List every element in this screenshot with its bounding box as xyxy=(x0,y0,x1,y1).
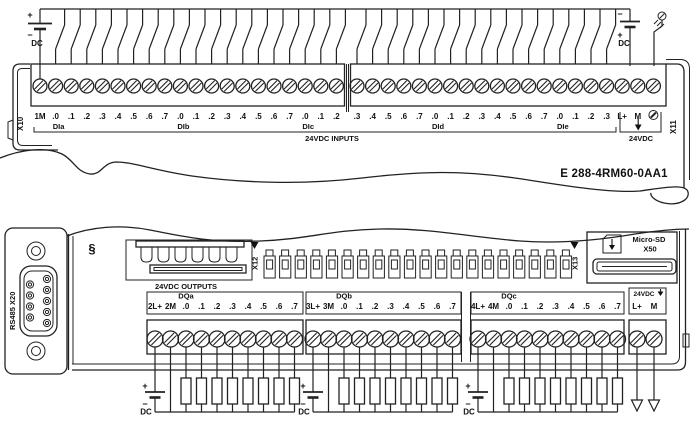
input-switch xyxy=(87,9,96,64)
relay-unit xyxy=(326,250,337,278)
pin-label: .7 xyxy=(286,112,293,121)
dc-source: +−DC xyxy=(463,347,488,417)
top-module: + − DC − + DC X10 X11 1M.0.1. xyxy=(8,9,690,188)
screw-terminal xyxy=(189,79,203,93)
sd-card-label: Micro-SD xyxy=(633,235,667,244)
pin-label: .1 xyxy=(198,302,205,311)
pin-label: .4 xyxy=(403,302,410,311)
pin-label: .2 xyxy=(588,112,595,121)
load-resistor xyxy=(566,347,576,412)
power-pin-label: 2L+ xyxy=(148,302,162,311)
load-resistor xyxy=(520,347,530,412)
load-resistor xyxy=(339,347,349,412)
screw-terminal xyxy=(475,79,489,93)
pin-label: 1M xyxy=(34,112,45,121)
input-switch xyxy=(357,9,366,64)
input-switch xyxy=(149,9,158,64)
input-switch xyxy=(227,9,236,64)
screw-terminal xyxy=(397,79,411,93)
screw-terminal xyxy=(522,79,536,93)
product-code: E 288-4RM60-0AA1 xyxy=(560,168,668,180)
screw-terminal xyxy=(225,331,241,347)
input-switch xyxy=(321,9,330,64)
input-switch xyxy=(165,9,174,64)
load-resistor xyxy=(448,347,458,412)
relay-unit xyxy=(373,250,384,278)
screw-terminal xyxy=(568,79,582,93)
pin-label: .7 xyxy=(416,112,423,121)
bus-connector xyxy=(126,240,252,280)
port-label-x12: X12 xyxy=(251,257,260,270)
relay-unit xyxy=(482,250,493,278)
screw-terminal xyxy=(111,79,125,93)
screw-terminal xyxy=(600,79,614,93)
load-resistor xyxy=(259,347,269,412)
screw-terminal xyxy=(445,331,461,347)
input-switch xyxy=(482,9,491,64)
screw-terminal xyxy=(147,331,163,347)
pin-label: .5 xyxy=(130,112,137,121)
dc-plus-label: + xyxy=(142,381,147,391)
pin-label: .4 xyxy=(369,112,376,121)
dc-plus-label: + xyxy=(465,381,470,391)
inputs-caption: 24VDC INPUTS xyxy=(305,134,359,143)
screw-terminal xyxy=(646,79,660,93)
input-group-label: DIe xyxy=(557,122,569,131)
screw-terminal xyxy=(548,331,564,347)
input-group-label: DIa xyxy=(53,122,66,131)
load-resistor xyxy=(274,347,284,412)
din-clip xyxy=(8,120,13,140)
pin-label: .3 xyxy=(224,112,231,121)
input-group-label: DId xyxy=(432,122,445,131)
relay-unit xyxy=(311,250,322,278)
pin-label: .7 xyxy=(614,302,621,311)
screw-terminal xyxy=(459,79,473,93)
terminal-strip xyxy=(306,320,461,354)
screw-terminal xyxy=(383,331,399,347)
screw-terminal xyxy=(563,331,579,347)
load-resistor xyxy=(582,347,592,412)
dc-source: +−DC xyxy=(140,347,165,417)
input-terminal-block-2 xyxy=(351,64,667,106)
power-pin-label: L+ xyxy=(632,302,642,311)
screw-terminal xyxy=(615,79,629,93)
bus-pin xyxy=(175,247,186,262)
power-pin-label: M xyxy=(651,302,658,311)
relay-unit xyxy=(420,250,431,278)
screw-terminal xyxy=(287,331,303,347)
pin-label: .1 xyxy=(193,112,200,121)
pin-label: .2 xyxy=(333,112,340,121)
pin-label: .1 xyxy=(356,302,363,311)
pin-label: .4 xyxy=(239,112,246,121)
output-wiring: +−DC xyxy=(298,347,457,417)
inputs-bracket: 24VDC INPUTS xyxy=(34,127,616,143)
outputs-caption: 24VDC OUTPUTS xyxy=(155,282,217,291)
output-block: 4L+4M.0.1.2.3.4.5.6.7DQc+−DC xyxy=(463,292,625,417)
screw-terminal xyxy=(236,79,250,93)
input-switch xyxy=(607,9,616,64)
micro-sd-slot: Micro-SD X50 xyxy=(587,232,677,283)
pin-label: .3 xyxy=(387,302,394,311)
screw-terminal xyxy=(629,331,645,347)
pin-label: .5 xyxy=(418,302,425,311)
screw-terminal xyxy=(610,331,626,347)
screw-terminal xyxy=(367,331,383,347)
pin-label: .0 xyxy=(432,112,439,121)
pin-label: .7 xyxy=(449,302,456,311)
output-arrow-icon xyxy=(632,400,643,411)
relay-unit xyxy=(529,250,540,278)
pin-label: .0 xyxy=(506,302,513,311)
pin-label: .2 xyxy=(214,302,221,311)
bus-pin xyxy=(226,247,237,262)
wiring-diagram-page: + − DC − + DC X10 X11 1M.0.1. xyxy=(0,0,691,421)
pin-label: .3 xyxy=(354,112,361,121)
module-frame-left xyxy=(8,64,58,150)
relay-unit xyxy=(451,250,462,278)
load-resistor xyxy=(504,347,514,412)
screw-terminal xyxy=(532,331,548,347)
input-switch xyxy=(544,9,553,64)
screw-terminal xyxy=(251,79,265,93)
bus-pin xyxy=(192,247,203,262)
output-group-label: DQc xyxy=(501,292,516,301)
pin-label: .1 xyxy=(572,112,579,121)
input-switch xyxy=(196,9,205,64)
pin-label: .0 xyxy=(556,112,563,121)
load-resistor xyxy=(355,347,365,412)
output-block: 3L+3M.0.1.2.3.4.5.6.7DQb+−DC xyxy=(298,292,461,417)
load-resistor xyxy=(370,347,380,412)
input-switch xyxy=(388,9,397,64)
screw-terminal xyxy=(517,331,533,347)
screw-terminal xyxy=(64,79,78,93)
output-arrow-icon xyxy=(649,400,660,411)
input-switch xyxy=(56,9,65,64)
dc-label: DC xyxy=(298,408,310,417)
load-resistor xyxy=(432,347,442,412)
power-pin-label: 4M xyxy=(488,302,499,311)
relay-unit xyxy=(514,250,525,278)
pe-terminal-icon xyxy=(649,111,658,120)
earth-icon xyxy=(654,12,666,66)
screw-terminal xyxy=(321,331,337,347)
output-group-label: DQa xyxy=(178,292,194,301)
input-switch xyxy=(451,9,460,64)
screw-terminal xyxy=(350,79,364,93)
dc-label: DC xyxy=(618,39,630,48)
relay-unit xyxy=(498,250,509,278)
screw-terminal xyxy=(412,79,426,93)
bus-pin xyxy=(209,247,220,262)
input-switch xyxy=(591,9,600,64)
pin-label: .1 xyxy=(68,112,75,121)
screw-terminal xyxy=(553,79,567,93)
pin-label: .5 xyxy=(260,302,267,311)
block-divider-column xyxy=(462,292,471,362)
dc-minus-label: − xyxy=(617,9,622,19)
load-resistor xyxy=(228,347,238,412)
dc-plus-label: + xyxy=(300,381,305,391)
screw-terminal xyxy=(314,79,328,93)
pin-label: .2 xyxy=(463,112,470,121)
input-switch xyxy=(419,9,428,64)
m-ground-arrow-icon xyxy=(635,125,642,131)
load-resistor xyxy=(401,347,411,412)
input-group-label: DIc xyxy=(302,122,314,131)
pin-label: .3 xyxy=(99,112,106,121)
relay-unit xyxy=(358,250,369,278)
load-resistor xyxy=(386,347,396,412)
screw-terminal xyxy=(428,79,442,93)
input-switch xyxy=(560,9,569,64)
screw-terminal xyxy=(80,79,94,93)
load-resistor xyxy=(613,347,623,412)
output-wiring: +−DC xyxy=(463,347,622,417)
load-resistor xyxy=(212,347,222,412)
input-switch xyxy=(497,9,506,64)
pin-label: .7 xyxy=(291,302,298,311)
load-resistor xyxy=(197,347,207,412)
load-resistor xyxy=(243,347,253,412)
screw-terminal xyxy=(414,331,430,347)
input-switch xyxy=(290,9,299,64)
supply-caption: 24VDC xyxy=(629,134,654,143)
screw-terminal xyxy=(631,79,645,93)
pin-label: .0 xyxy=(341,302,348,311)
input-switch xyxy=(180,9,189,64)
input-switch xyxy=(373,9,382,64)
pin-label: .6 xyxy=(434,302,441,311)
screw-terminal xyxy=(506,79,520,93)
load-resistor xyxy=(551,347,561,412)
screw-terminal xyxy=(398,331,414,347)
screw-terminal xyxy=(490,79,504,93)
screw-terminal xyxy=(240,331,256,347)
output-group-label: DQb xyxy=(336,292,352,301)
input-switch xyxy=(134,9,143,64)
relay-unit xyxy=(467,250,478,278)
input-switch xyxy=(529,9,538,64)
screw-terminal xyxy=(283,79,297,93)
pin-label: .6 xyxy=(599,302,606,311)
input-switch xyxy=(404,9,413,64)
pin-label: .0 xyxy=(302,112,309,121)
input-switch xyxy=(466,9,475,64)
screw-terminal xyxy=(579,331,595,347)
sd-port-label: X50 xyxy=(643,245,656,254)
grounding-symbol: § xyxy=(88,241,95,256)
screw-terminal xyxy=(205,79,219,93)
pin-label: L+ xyxy=(617,112,627,121)
screw-terminal xyxy=(298,79,312,93)
power-pin-label: 2M xyxy=(165,302,176,311)
bottom-module: RS485 X20 § X12 X13 xyxy=(5,227,689,417)
pin-label: .4 xyxy=(245,302,252,311)
screw-terminal xyxy=(256,331,272,347)
pin-label: .7 xyxy=(541,112,548,121)
x13-arrow-icon xyxy=(571,242,579,249)
screw-terminal xyxy=(537,79,551,93)
screw-terminal xyxy=(271,331,287,347)
load-resistor xyxy=(417,347,427,412)
screw-terminal xyxy=(305,331,321,347)
supply-caption: 24VDC xyxy=(634,291,655,298)
input-group-label: DIb xyxy=(177,122,190,131)
screw-terminal xyxy=(33,79,47,93)
pin-label: .0 xyxy=(183,302,190,311)
pin-label: .6 xyxy=(400,112,407,121)
power-pin-label: 4L+ xyxy=(471,302,485,311)
screw-terminal xyxy=(429,331,445,347)
wiring-diagram: + − DC − + DC X10 X11 1M.0.1. xyxy=(0,0,691,421)
screw-terminal xyxy=(163,331,179,347)
input-switch xyxy=(513,9,522,64)
pin-label: .0 xyxy=(177,112,184,121)
screw-terminal xyxy=(95,79,109,93)
screw-terminal xyxy=(158,79,172,93)
input-switch xyxy=(575,9,584,64)
screw-terminal xyxy=(594,331,610,347)
dc-label: DC xyxy=(140,408,152,417)
screw-terminal xyxy=(178,331,194,347)
relay-unit xyxy=(295,250,306,278)
dc-source: +−DC xyxy=(298,347,323,417)
screw-terminal xyxy=(220,79,234,93)
rs485-port-label: RS485 X20 xyxy=(8,292,17,330)
screw-terminal xyxy=(381,79,395,93)
dc-source-cpu: − + DC xyxy=(617,9,640,66)
screw-terminal xyxy=(444,79,458,93)
pe-arrow-icon xyxy=(658,289,664,296)
output-wiring: +−DC xyxy=(140,347,299,417)
relay-unit xyxy=(404,250,415,278)
power-pin-label: 3M xyxy=(323,302,334,311)
pin-label: .6 xyxy=(146,112,153,121)
pin-label: .3 xyxy=(552,302,559,311)
screw-terminal xyxy=(209,331,225,347)
pin-label: .6 xyxy=(276,302,283,311)
load-resistor xyxy=(597,347,607,412)
input-switch xyxy=(435,9,444,64)
input-switch xyxy=(258,9,267,64)
pin-label: .3 xyxy=(603,112,610,121)
pin-label: .4 xyxy=(494,112,501,121)
pin-label: .5 xyxy=(385,112,392,121)
port-label-x11: X11 xyxy=(669,120,678,134)
input-switch xyxy=(102,9,111,64)
input-switch xyxy=(305,9,314,64)
power-pin-label: 3L+ xyxy=(306,302,320,311)
relay-unit xyxy=(545,250,556,278)
pin-label: .7 xyxy=(161,112,168,121)
screw-terminal xyxy=(267,79,281,93)
pin-label: .2 xyxy=(83,112,90,121)
screw-terminal xyxy=(329,79,343,93)
load-resistor xyxy=(535,347,545,412)
load-resistor xyxy=(181,347,191,412)
input-switch xyxy=(71,9,80,64)
pin-label: .6 xyxy=(271,112,278,121)
screw-terminal xyxy=(366,79,380,93)
sensor-supply-block: 24VDCL+M xyxy=(629,288,666,411)
dc-label: DC xyxy=(31,39,43,48)
dc-plus-label: + xyxy=(27,10,32,20)
relay-unit xyxy=(264,250,275,278)
pin-label: .1 xyxy=(447,112,454,121)
screw-terminal xyxy=(584,79,598,93)
screw-terminal xyxy=(173,79,187,93)
input-switch xyxy=(212,9,221,64)
torn-edge: E 288-4RM60-0AA1 xyxy=(0,150,688,204)
pin-label: .4 xyxy=(115,112,122,121)
bus-pin xyxy=(141,247,152,262)
pin-label: .5 xyxy=(255,112,262,121)
input-switch xyxy=(274,9,283,64)
screw-terminal xyxy=(352,331,368,347)
pin-label: .2 xyxy=(208,112,215,121)
dc-label: DC xyxy=(463,408,475,417)
screw-terminal xyxy=(142,79,156,93)
input-switch xyxy=(118,9,127,64)
screw-terminal xyxy=(336,331,352,347)
screw-terminal xyxy=(127,79,141,93)
rs485-connector: RS485 X20 xyxy=(5,228,67,374)
relay-unit xyxy=(342,250,353,278)
screw-terminal xyxy=(194,331,210,347)
relay-unit xyxy=(389,250,400,278)
pin-label: .5 xyxy=(510,112,517,121)
output-block: 2L+2M.0.1.2.3.4.5.6.7DQa+−DC xyxy=(140,292,303,417)
bus-pin xyxy=(158,247,169,262)
input-switch xyxy=(336,9,345,64)
input-switch xyxy=(243,9,252,64)
pin-label: .0 xyxy=(52,112,59,121)
load-resistor xyxy=(290,347,300,412)
pin-label: .3 xyxy=(229,302,236,311)
pin-label: .5 xyxy=(583,302,590,311)
pin-label: .3 xyxy=(478,112,485,121)
pin-label: .6 xyxy=(525,112,532,121)
screw-terminal xyxy=(501,331,517,347)
pin-label: .2 xyxy=(372,302,379,311)
pin-label: .1 xyxy=(317,112,324,121)
port-label-x10: X10 xyxy=(16,116,25,131)
relay-unit xyxy=(280,250,291,278)
relay-unit xyxy=(436,250,447,278)
pin-label: .4 xyxy=(568,302,575,311)
pin-label: .1 xyxy=(521,302,528,311)
screw-terminal xyxy=(49,79,63,93)
screw-terminal xyxy=(486,331,502,347)
screw-terminal xyxy=(470,331,486,347)
pin-label: .2 xyxy=(537,302,544,311)
screw-terminal xyxy=(646,331,662,347)
